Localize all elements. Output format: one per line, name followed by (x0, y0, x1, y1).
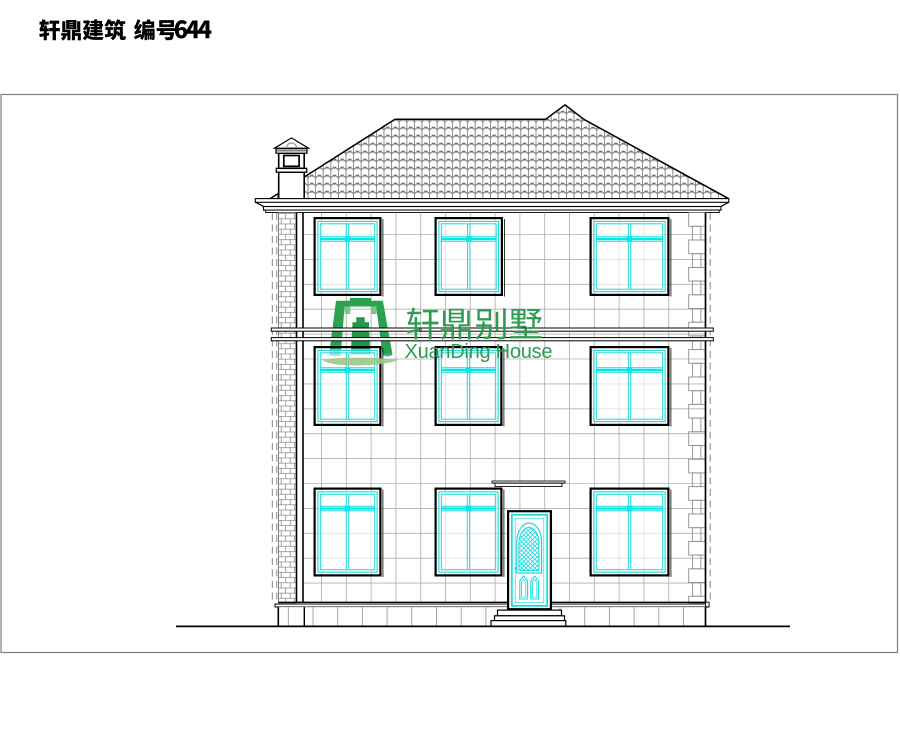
svg-text:XuanDing House: XuanDing House (405, 341, 553, 363)
